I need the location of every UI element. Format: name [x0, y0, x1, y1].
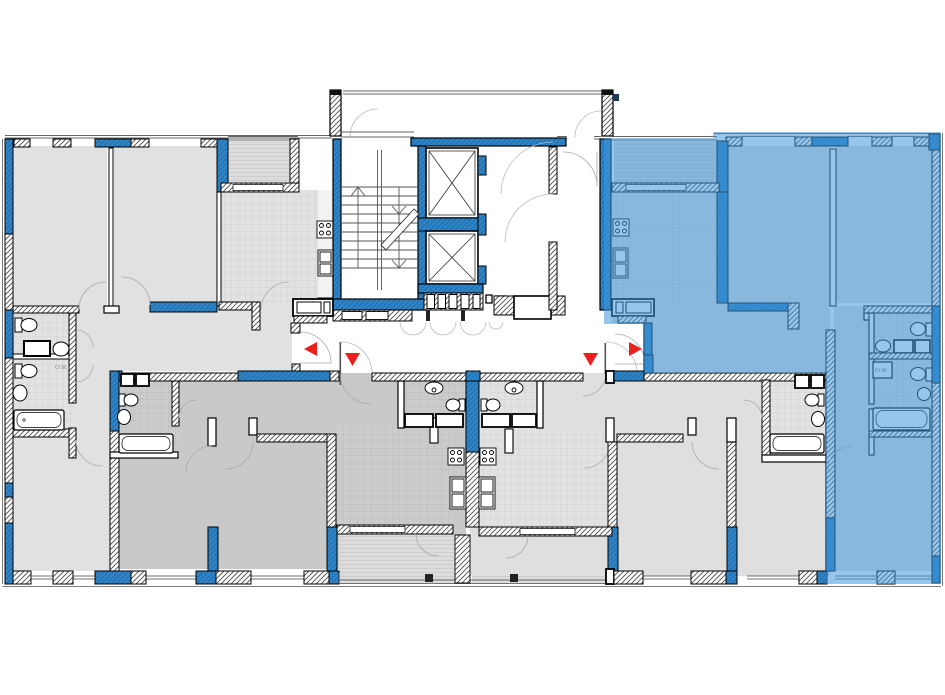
svg-text:Ст.М.: Ст.М. — [55, 365, 67, 371]
